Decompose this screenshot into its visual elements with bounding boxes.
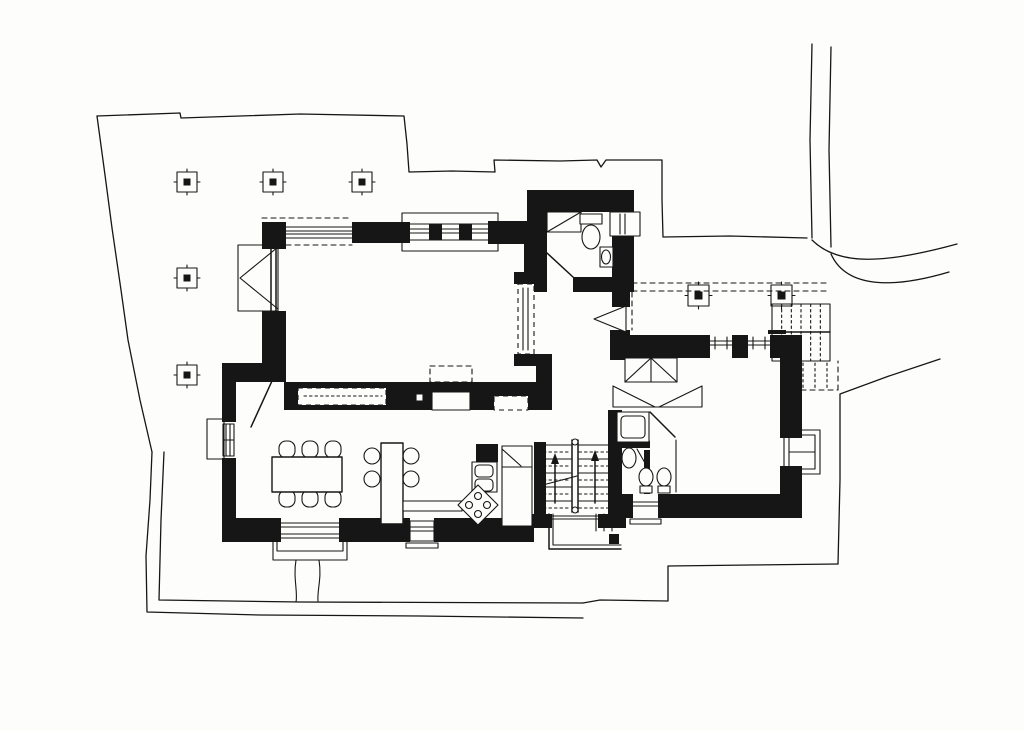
bar-stool bbox=[364, 471, 380, 487]
dining-table bbox=[272, 457, 342, 492]
living-east-niche bbox=[518, 284, 534, 354]
counter-return bbox=[403, 501, 462, 511]
bar-stool bbox=[403, 471, 419, 487]
wc-window bbox=[610, 212, 640, 236]
bar-stool bbox=[364, 448, 380, 464]
dining-chair bbox=[325, 441, 341, 458]
bedroom-wardrobe bbox=[613, 358, 702, 407]
stair-exit-threshold bbox=[552, 516, 598, 519]
toilet-tank bbox=[580, 214, 602, 224]
bedroom-south-window bbox=[630, 502, 661, 524]
toilet-icon bbox=[582, 225, 600, 249]
window-mullion bbox=[429, 224, 442, 240]
living-west-french-door bbox=[238, 245, 278, 311]
dining-furniture bbox=[272, 441, 462, 524]
firebox bbox=[432, 392, 470, 410]
dining-west-window bbox=[207, 419, 234, 459]
dining-bay-window bbox=[273, 523, 347, 560]
floor-plan-scan bbox=[0, 0, 1024, 731]
sink-bowl bbox=[475, 465, 493, 477]
floor-plan-drawing bbox=[0, 0, 1024, 731]
wc-door-leaf bbox=[547, 253, 573, 277]
dining-chair bbox=[302, 441, 318, 458]
bar-stool bbox=[403, 448, 419, 464]
hearth bbox=[430, 366, 472, 382]
fireplace-vent bbox=[416, 394, 423, 401]
dining-chair bbox=[279, 441, 295, 458]
bidet-icon bbox=[657, 468, 671, 486]
serving-hatch bbox=[494, 396, 528, 410]
newel-post bbox=[572, 507, 578, 513]
garden-path bbox=[295, 560, 320, 602]
window-mullion bbox=[459, 224, 472, 240]
south-small-window bbox=[406, 521, 438, 548]
bathroom-door-leaf bbox=[650, 412, 675, 437]
east-terrace-columns bbox=[685, 282, 795, 309]
bar-counter bbox=[381, 443, 403, 524]
newel-post bbox=[572, 439, 578, 445]
east-terrace-outline bbox=[632, 283, 830, 330]
driveway-path bbox=[810, 44, 957, 283]
kitchen-cabinet bbox=[502, 446, 532, 526]
toilet-icon bbox=[639, 468, 653, 486]
entry-door-leaf bbox=[251, 381, 272, 427]
hall-north-window bbox=[402, 213, 498, 251]
wc-fixtures bbox=[547, 212, 613, 267]
terrace-door-leaf bbox=[594, 306, 626, 332]
bath-washbasin bbox=[622, 448, 636, 468]
